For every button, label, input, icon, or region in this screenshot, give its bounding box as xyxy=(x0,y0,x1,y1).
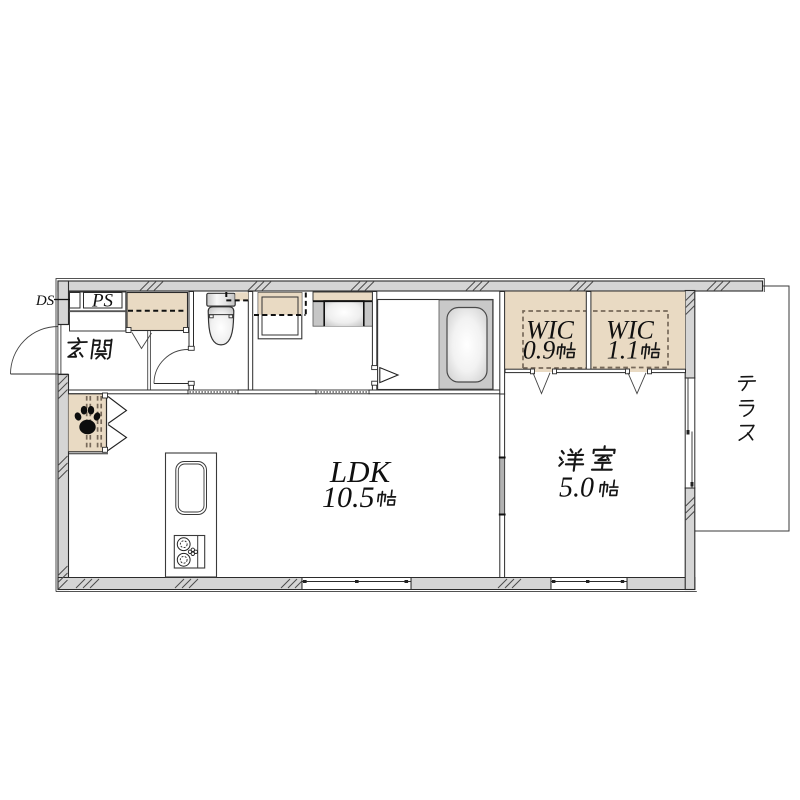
svg-text:10.5: 10.5 xyxy=(322,481,375,514)
svg-text:PS: PS xyxy=(91,291,114,312)
svg-text:DS: DS xyxy=(35,293,55,309)
svg-text:0.9: 0.9 xyxy=(523,336,556,365)
svg-text:1.1: 1.1 xyxy=(607,336,640,365)
svg-text:5.0: 5.0 xyxy=(559,473,594,504)
